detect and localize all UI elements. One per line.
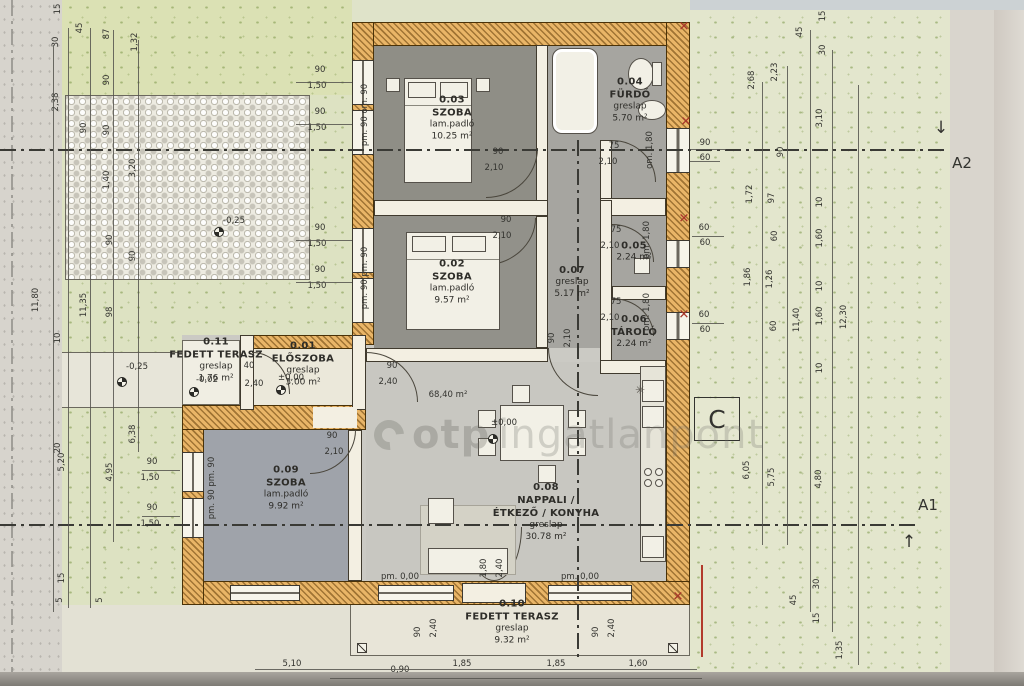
- dimension-label: 60: [699, 310, 710, 320]
- room-label-0.06: 0.06TÁROLÓ2.24 m²: [611, 313, 657, 351]
- dimension-label: 15: [818, 11, 828, 22]
- dimension-label: 90: [102, 75, 112, 86]
- room-label-0.01: 0.01ELŐSZOBAgreslap3.00 m²: [272, 339, 334, 388]
- dimension-label: 30: [812, 579, 822, 590]
- dimension-label: 2,10: [599, 157, 618, 167]
- dimension-label: 12,30: [839, 305, 849, 329]
- dimension-label: 90: [493, 147, 504, 157]
- red-x-mark: ✕: [679, 20, 690, 35]
- dimension-line: [787, 66, 788, 545]
- dimension-line: [330, 678, 702, 679]
- dimension-line: [138, 40, 139, 452]
- dimension-line: [762, 82, 763, 545]
- dimension-label: 5: [95, 597, 105, 602]
- dimension-label: 90: [147, 457, 158, 467]
- room-label-0.09: 0.09SZOBAlam.padló9.92 m²: [264, 463, 309, 512]
- dimension-label: 90: [102, 125, 112, 136]
- dimension-label: 10: [815, 281, 825, 292]
- dimension-label: 10: [53, 333, 63, 344]
- dimension-label: 4,80: [814, 470, 824, 489]
- dimension-label: 45: [795, 27, 805, 38]
- dimension-label: 75: [611, 225, 622, 235]
- level-label: ±0,00: [491, 418, 517, 428]
- red-x-mark: ✕: [673, 590, 684, 605]
- dimension-label: 90: [591, 627, 601, 638]
- dimension-line: [692, 323, 724, 324]
- dimension-label: 1,60: [629, 659, 648, 669]
- dimension-label: 2,10: [485, 163, 504, 173]
- dimension-label: 60: [700, 325, 711, 335]
- level-symbol: [117, 377, 127, 387]
- dimension-label: pm. 0,00: [381, 572, 419, 582]
- dimension-label: 1,85: [547, 659, 566, 669]
- dimension-label: 15: [53, 4, 63, 15]
- dimension-label: 1,50: [141, 473, 160, 483]
- dimension-label: 0,90: [391, 665, 410, 675]
- dimension-label: 97: [767, 193, 777, 204]
- level-label: -0,25: [223, 216, 245, 226]
- dimension-line: [858, 85, 859, 665]
- dimension-label: 45: [75, 23, 85, 34]
- dimension-line: [255, 669, 697, 670]
- red-x-mark: ✕: [679, 212, 690, 227]
- dimension-label: 1,60: [815, 229, 825, 248]
- room-label-0.08: 0.08NAPPALI /ÉTKEZŐ / KONYHAgreslap30.78…: [493, 481, 600, 543]
- dimension-label: 10: [815, 363, 825, 374]
- dimension-label: 90: [501, 215, 512, 225]
- dimension-label: 60: [700, 238, 711, 248]
- dimension-label: 2,23: [770, 63, 780, 82]
- annotation-layer: 153045871,32902,3890901,403,20909011,801…: [0, 0, 1024, 686]
- dimension-label: 3,20: [128, 159, 138, 178]
- dimension-label: 60: [769, 321, 779, 332]
- level-symbol: [488, 434, 498, 444]
- level-symbol: [214, 227, 224, 237]
- dimension-label: pm. 90 pm. 90: [360, 247, 370, 310]
- dimension-line: [296, 124, 352, 125]
- dimension-line: [832, 50, 833, 632]
- dimension-line: [296, 82, 352, 83]
- red-x-mark: ✕: [679, 308, 690, 323]
- dimension-label: 5,10: [283, 659, 302, 669]
- dimension-label: 90: [700, 138, 711, 148]
- dimension-label: 11,35: [79, 293, 89, 317]
- dimension-label: 1,80: [479, 559, 489, 578]
- red-x-mark: ✕: [681, 115, 692, 130]
- dimension-label: 5: [55, 597, 65, 602]
- dimension-label: 2,68: [747, 71, 757, 90]
- dimension-label: 1,35: [835, 641, 845, 660]
- dimension-line: [68, 28, 69, 608]
- dimension-label: 1,85: [453, 659, 472, 669]
- dimension-label: 60: [699, 223, 710, 233]
- dimension-label: 60: [770, 231, 780, 242]
- dimension-label: 87: [102, 29, 112, 40]
- dimension-line: [113, 30, 114, 542]
- dimension-line: [296, 240, 352, 241]
- dimension-label: 90: [387, 361, 398, 371]
- dimension-label: 2,40: [495, 559, 505, 578]
- dimension-label: 2,40: [379, 377, 398, 387]
- dimension-label: 1,26: [765, 270, 775, 289]
- dimension-label: 90: [147, 503, 158, 513]
- dimension-line: [142, 516, 180, 517]
- dimension-label: 1,50: [141, 519, 160, 529]
- dimension-label: 1,86: [743, 268, 753, 287]
- dimension-line: [690, 161, 720, 162]
- dimension-label: 90: [315, 65, 326, 75]
- dimension-line: [296, 282, 352, 283]
- dimension-label: 90: [327, 431, 338, 441]
- dimension-label: 45: [789, 595, 799, 606]
- dimension-label: 90: [547, 333, 557, 344]
- dimension-label: 90: [79, 123, 89, 134]
- dimension-label: 2,40: [607, 619, 617, 638]
- dimension-label: 90: [128, 251, 138, 262]
- floor-plan-page: ✳ A2 ↓ A1 ↑ C otp ingatlanpont 153045871…: [0, 0, 1024, 686]
- dimension-label: 11,80: [31, 288, 41, 312]
- dimension-label: 11,40: [792, 308, 802, 332]
- dimension-label: 6,38: [128, 425, 138, 444]
- dimension-line: [90, 28, 91, 608]
- dimension-line: [142, 470, 180, 471]
- room-label-0.02: 0.02SZOBAlam.padló9.57 m²: [430, 257, 475, 306]
- dimension-line: [690, 149, 726, 150]
- room-label-0.10: 0.10FEDETT TERASZgreslap9.32 m²: [465, 597, 559, 646]
- dimension-label: 15: [812, 613, 822, 624]
- dimension-label: 1,60: [815, 307, 825, 326]
- dimension-label: 68,40 m²: [429, 390, 468, 400]
- dimension-label: pm. 90 om. 90: [360, 84, 370, 146]
- dimension-label: 6,05: [742, 461, 752, 480]
- dimension-label: 30: [818, 45, 828, 56]
- dimension-label: 2,10: [563, 329, 573, 348]
- dimension-label: 1,40: [102, 171, 112, 190]
- dimension-label: 90: [413, 627, 423, 638]
- dimension-label: 75: [609, 141, 620, 151]
- room-label-0.11: 0.11FEDETT TERASZgreslap1.76 m²: [169, 335, 263, 384]
- dimension-label: 2,40: [429, 619, 439, 638]
- dimension-label: 75: [611, 297, 622, 307]
- dimension-label: 5,20: [57, 453, 67, 472]
- dimension-label: 1,72: [745, 185, 755, 204]
- dimension-label: pm. 90 pm. 90: [207, 457, 217, 520]
- dimension-label: 90: [315, 265, 326, 275]
- dimension-label: om. 1,80: [645, 131, 655, 169]
- dimension-line: [692, 236, 724, 237]
- dimension-label: 3,10: [815, 109, 825, 128]
- room-label-0.05: 0.052.24 m²: [616, 240, 651, 265]
- dimension-label: 2,10: [325, 447, 344, 457]
- room-label-0.04: 0.04FÜRDŐgreslap5.70 m²: [610, 75, 651, 124]
- dimension-label: 10: [815, 197, 825, 208]
- level-symbol: [189, 387, 199, 397]
- room-label-0.07: 0.07greslap5.17 m²: [554, 264, 589, 300]
- level-label: -0,25: [126, 362, 148, 372]
- dimension-label: 2,10: [493, 231, 512, 241]
- dimension-label: 5,75: [767, 468, 777, 487]
- dimension-label: 15: [57, 573, 67, 584]
- dimension-label: 90: [776, 147, 786, 158]
- room-label-0.03: 0.03SZOBAlam.padló10.25 m²: [430, 93, 475, 142]
- dimension-label: pm. 0,00: [561, 572, 599, 582]
- dimension-label: 90: [315, 223, 326, 233]
- dimension-line: [53, 45, 54, 612]
- dimension-label: 90: [315, 107, 326, 117]
- dimension-line: [810, 30, 811, 612]
